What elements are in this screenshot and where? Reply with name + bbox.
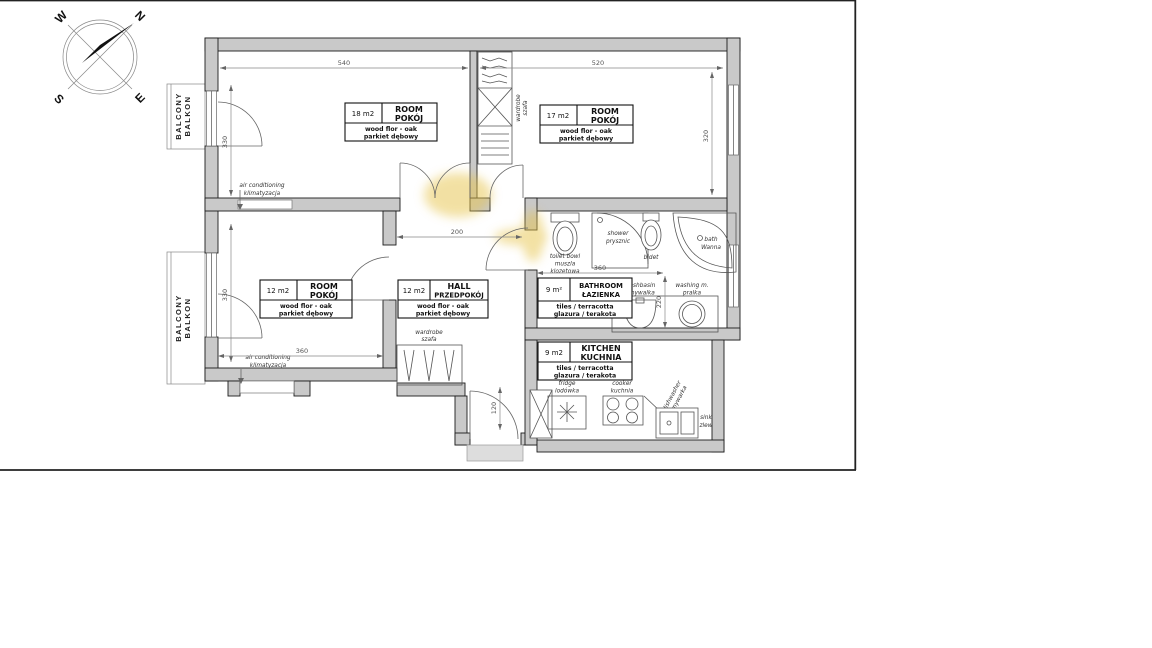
wardrobe-hall-label-en: wardrobe (415, 330, 443, 336)
aircon-top-label-en: air conditioning (239, 183, 284, 189)
room17-area: 17 m2 (547, 112, 569, 120)
toilet-label-pl2: klozetowa (550, 269, 580, 275)
room17-name-pl: POKÓJ (591, 114, 619, 125)
hall-floor-pl: parkiet dębowy (416, 311, 470, 318)
bathroom-floor-pl: glazura / terakota (554, 311, 616, 318)
dim-room12-width: 360 (218, 347, 383, 358)
bathroom-label-box: 9 m² BATHROOM ŁAZIENKA tiles / terracott… (538, 278, 632, 318)
svg-text:360: 360 (594, 264, 606, 272)
cooker-label-pl: kuchnia (611, 389, 634, 395)
balcony-top: BALCONY BALKON (167, 84, 205, 149)
toilet-label-pl1: muszla (555, 262, 576, 268)
toilet-label-en: toilet bowl (550, 254, 581, 260)
svg-text:120: 120 (490, 402, 498, 414)
room12-name-pl: POKÓJ (310, 289, 338, 300)
fridge-label-en: fridge (559, 381, 576, 387)
bathroom-area: 9 m² (546, 286, 562, 294)
balcony-bottom: BALCONY BALKON (167, 252, 205, 384)
bath-label-en: bath (704, 237, 718, 243)
compass-needle (82, 23, 134, 63)
compass-s: S (51, 91, 67, 107)
aircon-bottom-label-pl: klimatyzacja (250, 363, 287, 369)
hall-floor-en: wood flor - oak (417, 303, 470, 310)
bathroom-name-en: BATHROOM (579, 282, 623, 290)
dim-room17-height: 320 (702, 72, 714, 195)
balcony-bottom-label-pl: BALKON (183, 297, 192, 338)
entrance-landing (467, 445, 523, 461)
washing-machine-label-pl: pralka (682, 291, 702, 297)
room18-floor-pl: parkiet dębowy (364, 134, 418, 141)
bidet: bidet (641, 213, 661, 261)
shower: shower prysznic (592, 213, 648, 268)
room17-label-box: 17 m2 ROOM POKÓJ wood flor - oak parkiet… (540, 105, 633, 143)
kitchen-name-en: KITCHEN (581, 344, 620, 353)
compass-rose: N W S E (51, 8, 148, 107)
sink-label-pl: zlew (699, 423, 713, 429)
floor-plan-drawing: N W S E BALCONY BALKON BALCONY BALKON (0, 0, 1152, 648)
balcony-top-label-en: BALCONY (174, 92, 183, 140)
wardrobe-hall-label-pl: szafa (421, 337, 437, 343)
bathroom-name-pl: ŁAZIENKA (581, 291, 621, 299)
kitchen-name-pl: KUCHNIA (581, 353, 623, 362)
room18-floor-en: wood flor - oak (365, 126, 418, 133)
toilet: toilet bowl muszla klozetowa (550, 213, 581, 275)
shower-label-en: shower (608, 231, 630, 237)
compass-e: E (132, 90, 148, 106)
bidet-label: bidet (644, 255, 660, 261)
room12-floor-pl: parkiet dębowy (279, 311, 333, 318)
room18-label-box: 18 m2 ROOM POKÓJ wood flor - oak parkiet… (345, 103, 437, 141)
bathroom-floor-en: tiles / terracotta (556, 304, 613, 311)
room17-floor-en: wood flor - oak (560, 128, 613, 135)
kitchen-area: 9 m2 (545, 349, 563, 357)
wardrobe-top-label-en: wardrobe (516, 94, 522, 122)
svg-text:360: 360 (296, 347, 308, 355)
snowflake-icon (557, 402, 577, 422)
aircon-top-label-pl: klimatyzacja (244, 191, 281, 197)
highlight-marks (424, 173, 546, 262)
dim-room17-width: 520 (480, 59, 723, 70)
hall-name-pl: PRZEDPOKÓJ (434, 291, 483, 300)
room12-area: 12 m2 (267, 287, 289, 295)
floor-plan-page: N W S E BALCONY BALKON BALCONY BALKON (0, 0, 1152, 648)
sink: sink zlew (656, 408, 713, 438)
ventilation-shaft (530, 390, 552, 438)
kitchen-floor-en: tiles / terracotta (556, 365, 613, 372)
hall-label-box: 12 m2 HALL PRZEDPOKÓJ wood flor - oak pa… (398, 280, 488, 318)
hall-name-en: HALL (447, 282, 470, 291)
bath-label-pl: Wanna (701, 245, 721, 251)
svg-text:330: 330 (221, 289, 229, 301)
fridge: fridge lodówka (548, 381, 586, 429)
wardrobe-top-label-pl: szafa (523, 100, 529, 116)
svg-text:540: 540 (338, 59, 350, 67)
washing-machine-label-en: washing m. (675, 283, 708, 289)
room17-name-en: ROOM (591, 107, 619, 116)
svg-text:200: 200 (451, 228, 463, 236)
sink-label-en: sink (700, 415, 712, 421)
room18-area: 18 m2 (352, 110, 374, 118)
hall-area: 12 m2 (403, 287, 425, 295)
fridge-label-pl: lodówka (555, 388, 579, 395)
compass-n: N (132, 8, 148, 24)
room12-floor-en: wood flor - oak (280, 303, 333, 310)
dim-room18-width: 540 (220, 59, 468, 70)
cooker-label-en: cooker (612, 381, 632, 387)
dim-entrance: 120 (490, 387, 502, 430)
svg-text:220: 220 (655, 296, 663, 308)
room18-name-en: ROOM (395, 105, 423, 114)
dim-bathroom-height: 220 (655, 276, 667, 328)
kitchen-floor-pl: glazura / terakota (554, 373, 616, 380)
bathtub: bath Wanna (673, 213, 736, 273)
room12-name-en: ROOM (310, 282, 338, 291)
room17-floor-pl: parkiet dębowy (559, 136, 613, 143)
svg-text:330: 330 (221, 136, 229, 148)
room18-name-pl: POKÓJ (395, 112, 423, 123)
balcony-bottom-label-en: BALCONY (174, 294, 183, 342)
shower-label-pl: prysznic (605, 239, 631, 245)
dim-room12-height: 330 (221, 224, 233, 362)
dim-room18-height: 330 (221, 85, 233, 196)
wardrobe-hall: wardrobe szafa (397, 330, 462, 385)
kitchen-label-box: 9 m2 KITCHEN KUCHNIA tiles / terracotta … (538, 342, 632, 380)
svg-text:520: 520 (592, 59, 604, 67)
svg-text:320: 320 (702, 130, 710, 142)
cooker: cooker kuchnia (603, 381, 643, 425)
room12-label-box: 12 m2 ROOM POKÓJ wood flor - oak parkiet… (260, 280, 352, 318)
washing-machine: washing m. pralka (675, 283, 708, 327)
compass-w: W (52, 8, 70, 26)
balcony-top-label-pl: BALKON (183, 95, 192, 136)
